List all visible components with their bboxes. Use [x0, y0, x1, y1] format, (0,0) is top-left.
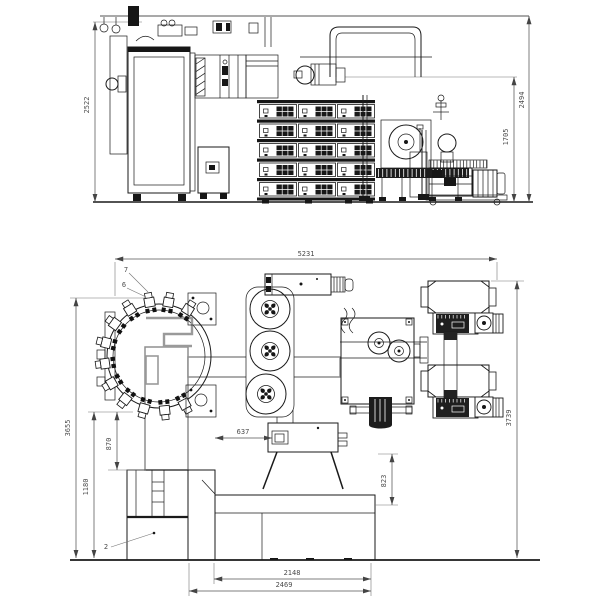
- dimension-base-front-depth: 1180: [82, 412, 133, 558]
- bellows: [196, 58, 205, 96]
- side-view: 2522 2494 1705: [83, 6, 533, 205]
- part-label-2: 2: [104, 532, 155, 551]
- drive-motor: [294, 64, 345, 85]
- drawing-canvas: 2522 2494 1705: [0, 0, 600, 600]
- engineering-drawing-svg: 2522 2494 1705: [0, 0, 600, 600]
- handwheel-icon: [106, 78, 118, 90]
- svg-text:2: 2: [104, 543, 108, 551]
- dimension-base-length-outer: 2469: [189, 563, 371, 596]
- hose: [349, 308, 355, 333]
- overhead-duct: [330, 27, 421, 77]
- svg-text:2469: 2469: [276, 581, 293, 589]
- svg-text:1705: 1705: [502, 129, 510, 146]
- dimension-overall-depth-left: 3655: [64, 298, 150, 558]
- dimension-stand-offset: 637: [215, 428, 272, 438]
- pump-motor: [473, 170, 497, 197]
- svg-text:823: 823: [380, 475, 388, 488]
- roughing-pumps: [421, 281, 503, 418]
- ball-valve: [433, 95, 456, 162]
- svg-text:3655: 3655: [64, 420, 72, 437]
- machine-base: [127, 470, 375, 561]
- inner-duct: [146, 318, 192, 346]
- feedthrough-icon: [128, 6, 139, 26]
- dimension-stand-to-base: 823: [375, 454, 398, 505]
- dimension-column-front-depth: 870: [105, 412, 146, 470]
- chamber-door: [106, 17, 195, 201]
- control-cabinet: [198, 147, 229, 199]
- dimension-total-height: 2494: [518, 16, 529, 202]
- support-stand: [263, 423, 347, 489]
- part-label-6: 6: [122, 281, 146, 297]
- pump-station: [340, 318, 428, 429]
- vacuum-pump: [410, 125, 507, 205]
- svg-text:637: 637: [237, 428, 250, 436]
- blower: [381, 120, 431, 168]
- svg-text:5231: 5231: [298, 250, 315, 258]
- winding-mechanism: [195, 55, 278, 98]
- gauge-icon: [112, 25, 120, 33]
- svg-text:6: 6: [122, 281, 126, 289]
- winding-rollers: [246, 287, 294, 417]
- station-motor: [369, 397, 392, 425]
- svg-text:1180: 1180: [82, 479, 90, 496]
- svg-text:2522: 2522: [83, 97, 91, 114]
- power-supply-rack: [257, 100, 375, 204]
- svg-text:3739: 3739: [505, 410, 513, 427]
- plan-view: 5231 3655 1180 870 637 823: [64, 250, 540, 596]
- svg-text:7: 7: [124, 266, 128, 274]
- svg-text:2494: 2494: [518, 92, 526, 109]
- svg-text:870: 870: [105, 438, 113, 451]
- top-fittings: [100, 6, 271, 47]
- svg-text:2148: 2148: [284, 569, 301, 577]
- door-hinge: [190, 53, 195, 191]
